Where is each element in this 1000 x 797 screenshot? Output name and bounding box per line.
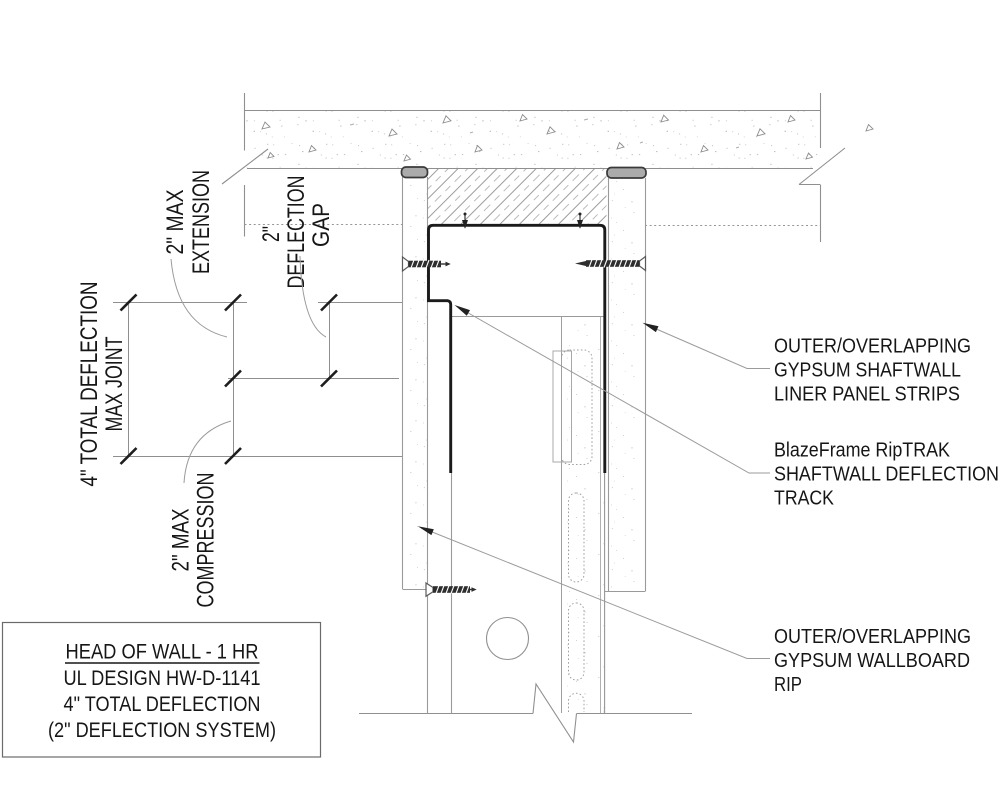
svg-text:MAX JOINT: MAX JOINT — [101, 336, 128, 431]
svg-text:HEAD OF WALL - 1 HR: HEAD OF WALL - 1 HR — [66, 641, 259, 664]
svg-text:RIP: RIP — [774, 673, 802, 696]
svg-text:(2" DEFLECTION SYSTEM): (2" DEFLECTION SYSTEM) — [48, 719, 276, 742]
svg-text:COMPRESSION: COMPRESSION — [193, 473, 220, 608]
svg-text:GYPSUM WALLBOARD: GYPSUM WALLBOARD — [774, 649, 970, 672]
svg-text:GAP: GAP — [308, 203, 335, 247]
svg-text:UL DESIGN HW-D-1141: UL DESIGN HW-D-1141 — [64, 667, 261, 690]
svg-text:SHAFTWALL DEFLECTION: SHAFTWALL DEFLECTION — [774, 463, 999, 486]
svg-text:TRACK: TRACK — [774, 487, 834, 510]
svg-text:2" MAX: 2" MAX — [168, 509, 195, 572]
svg-text:OUTER/OVERLAPPING: OUTER/OVERLAPPING — [774, 335, 971, 358]
svg-text:4" TOTAL DEFLECTION: 4" TOTAL DEFLECTION — [64, 693, 261, 716]
svg-text:4" TOTAL DEFLECTION: 4" TOTAL DEFLECTION — [76, 282, 103, 487]
svg-text:GYPSUM SHAFTWALL: GYPSUM SHAFTWALL — [774, 359, 961, 382]
svg-text:LINER PANEL STRIPS: LINER PANEL STRIPS — [774, 383, 960, 406]
svg-text:EXTENSION: EXTENSION — [188, 170, 215, 274]
svg-text:BlazeFrame RipTRAK: BlazeFrame RipTRAK — [774, 439, 950, 462]
svg-text:DEFLECTION: DEFLECTION — [283, 176, 310, 289]
svg-text:OUTER/OVERLAPPING: OUTER/OVERLAPPING — [774, 625, 971, 648]
svg-text:2": 2" — [258, 226, 285, 242]
svg-text:2" MAX: 2" MAX — [162, 190, 189, 255]
